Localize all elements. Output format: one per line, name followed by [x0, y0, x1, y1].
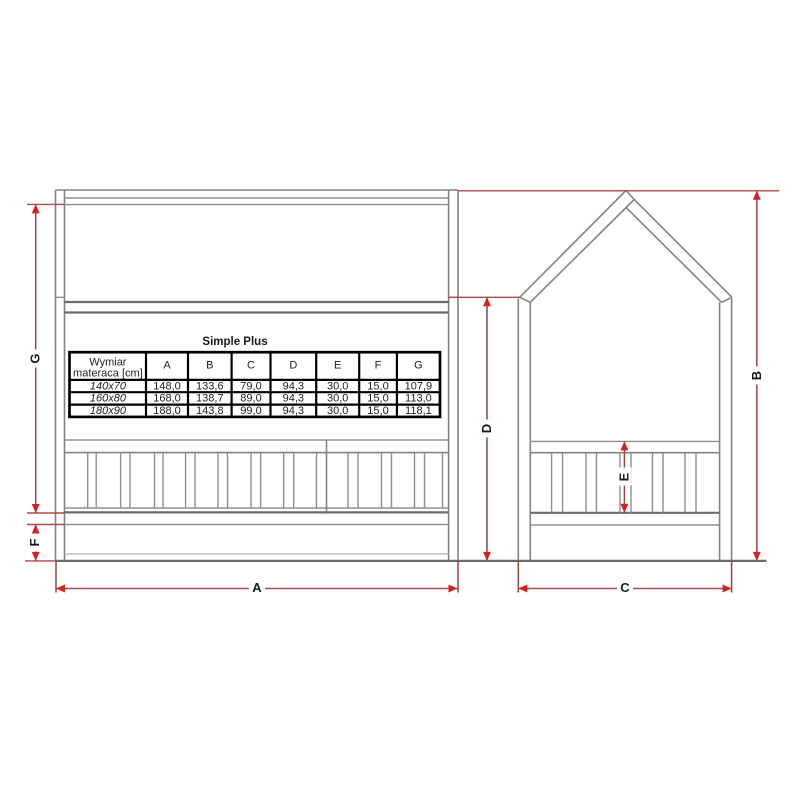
svg-text:140x70: 140x70: [90, 380, 127, 392]
svg-text:F: F: [27, 538, 42, 546]
svg-text:148,0: 148,0: [153, 380, 181, 392]
svg-text:107,9: 107,9: [405, 380, 433, 392]
svg-text:Wymiar: Wymiar: [89, 356, 127, 368]
svg-text:188,0: 188,0: [153, 405, 181, 417]
svg-text:C: C: [247, 360, 255, 372]
svg-text:160x80: 160x80: [90, 393, 127, 405]
svg-text:F: F: [375, 360, 382, 372]
svg-text:D: D: [289, 360, 297, 372]
svg-text:94,3: 94,3: [283, 393, 304, 405]
svg-text:B: B: [749, 371, 764, 380]
svg-text:133,6: 133,6: [196, 380, 224, 392]
svg-text:E: E: [334, 360, 341, 372]
svg-text:A: A: [252, 580, 262, 595]
svg-text:168,0: 168,0: [153, 393, 181, 405]
svg-text:C: C: [620, 580, 630, 595]
svg-text:Simple Plus: Simple Plus: [202, 336, 267, 348]
svg-text:79,0: 79,0: [240, 380, 261, 392]
svg-text:D: D: [479, 424, 494, 433]
svg-text:30,0: 30,0: [327, 380, 348, 392]
svg-text:B: B: [206, 360, 213, 372]
svg-text:89,0: 89,0: [240, 393, 261, 405]
svg-text:30,0: 30,0: [327, 405, 348, 417]
svg-text:15,0: 15,0: [367, 393, 388, 405]
svg-text:113,0: 113,0: [405, 393, 432, 405]
svg-text:materaca [cm]: materaca [cm]: [73, 368, 143, 380]
svg-text:15,0: 15,0: [367, 380, 388, 392]
svg-text:E: E: [616, 472, 631, 481]
svg-text:99,0: 99,0: [240, 405, 261, 417]
svg-text:180x90: 180x90: [90, 405, 127, 417]
svg-text:A: A: [163, 360, 171, 372]
svg-text:15,0: 15,0: [367, 405, 388, 417]
svg-text:94,3: 94,3: [283, 380, 304, 392]
svg-text:G: G: [414, 360, 423, 372]
svg-text:138,7: 138,7: [196, 393, 224, 405]
svg-text:G: G: [27, 353, 42, 363]
svg-text:118,1: 118,1: [405, 405, 432, 417]
svg-text:143,8: 143,8: [196, 405, 224, 417]
svg-text:94,3: 94,3: [283, 405, 304, 417]
svg-text:30,0: 30,0: [327, 393, 348, 405]
